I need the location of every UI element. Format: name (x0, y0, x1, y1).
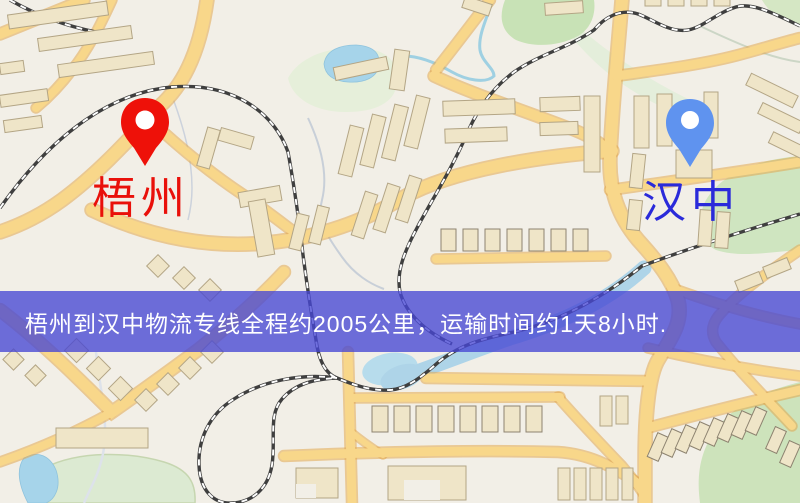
origin-pin-icon (121, 98, 169, 166)
destination-pin-icon (666, 99, 714, 167)
origin-pin-hole (136, 111, 155, 130)
map-canvas[interactable] (0, 0, 800, 503)
map: 梧州到汉中物流专线全程约2005公里，运输时间约1天8小时. 梧州 汉中 (0, 0, 800, 503)
destination-pin-hole (681, 111, 699, 129)
destination-pin-label: 汉中 (642, 181, 740, 225)
origin-pin-label: 梧州 (92, 177, 190, 221)
route-banner-text: 梧州到汉中物流专线全程约2005公里，运输时间约1天8小时. (0, 305, 667, 339)
route-banner: 梧州到汉中物流专线全程约2005公里，运输时间约1天8小时. (0, 291, 800, 352)
